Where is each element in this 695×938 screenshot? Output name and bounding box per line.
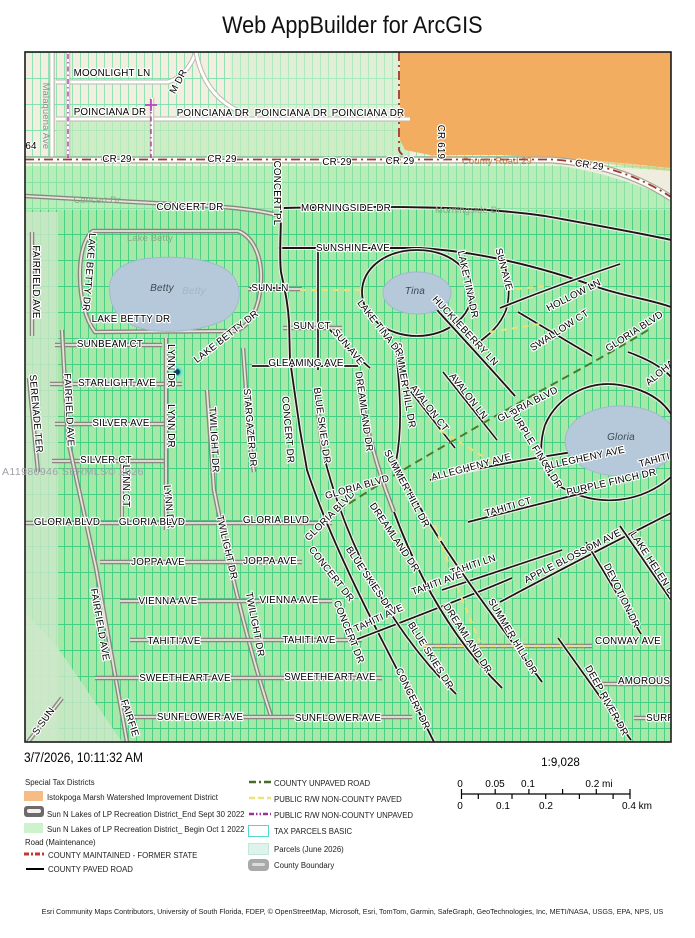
svg-text:CR 29: CR 29 [386,156,415,167]
svg-text:0.1: 0.1 [496,801,510,812]
svg-text:TAHITI AVE: TAHITI AVE [147,636,201,647]
svg-text:VIENNA AVE: VIENNA AVE [139,596,198,607]
svg-text:GLEAMING AVE: GLEAMING AVE [268,358,343,369]
svg-text:SUN LN: SUN LN [251,283,288,294]
svg-text:SUN CT: SUN CT [293,321,331,332]
svg-text:SILVER AVE: SILVER AVE [92,418,149,429]
svg-text:0.2 mi: 0.2 mi [585,779,612,790]
svg-text:CR-29: CR-29 [207,154,236,165]
svg-text:0.1: 0.1 [521,779,535,790]
svg-text:CONCERT DR: CONCERT DR [157,202,224,213]
svg-text:CONWAY AVE: CONWAY AVE [595,636,661,647]
svg-text:0: 0 [457,779,463,790]
svg-text:0.2: 0.2 [539,801,553,812]
svg-text:TAHITI AVE: TAHITI AVE [282,635,336,646]
svg-text:POINCIANA DR: POINCIANA DR [74,107,147,118]
svg-text:MORNINGSIDE DR: MORNINGSIDE DR [301,203,391,214]
svg-text:FAIRFIELD AVE: FAIRFIELD AVE [30,245,41,318]
svg-text:GLORIA BLVD: GLORIA BLVD [34,517,100,528]
svg-text:Betty: Betty [182,286,207,297]
svg-text:JOPPA AVE: JOPPA AVE [131,557,185,568]
svg-text:POINCIANA DR: POINCIANA DR [177,108,250,119]
svg-text:POINCIANA DR: POINCIANA DR [255,108,328,119]
svg-text:GLORIA BLVD: GLORIA BLVD [119,517,185,528]
svg-text:LAKE BETTY DR: LAKE BETTY DR [92,314,171,325]
svg-text:CONCERT PL: CONCERT PL [271,161,282,226]
svg-text:Tina: Tina [405,286,425,297]
svg-text:VIENNA AVE: VIENNA AVE [260,595,319,606]
svg-text:JOPPA AVE: JOPPA AVE [243,556,297,567]
svg-text:Gloria: Gloria [607,432,635,443]
svg-text:Morningside Dr: Morningside Dr [435,205,501,215]
svg-text:POINCIANA DR: POINCIANA DR [332,108,405,119]
svg-text:SWEETHEART AVE: SWEETHEART AVE [284,672,376,683]
svg-text:Betty: Betty [150,283,175,294]
svg-text:Lake Betty: Lake Betty [127,233,173,243]
svg-text:SUNFLOWER AVE: SUNFLOWER AVE [295,713,382,724]
svg-text:LYNN DR: LYNN DR [165,404,176,448]
svg-text:SURREY AVE: SURREY AVE [646,713,672,724]
svg-text:LYNN DR: LYNN DR [165,344,176,388]
svg-text:CR-29: CR-29 [102,154,131,165]
svg-text:GLORIA BLVD: GLORIA BLVD [243,515,309,526]
svg-text:64: 64 [25,141,37,152]
svg-text:MOONLIGHT LN: MOONLIGHT LN [74,68,151,79]
svg-text:SWEETHEART AVE: SWEETHEART AVE [139,673,231,684]
svg-text:CR-29: CR-29 [322,157,351,168]
svg-text:CR 619: CR 619 [435,125,446,159]
svg-text:Malaquena Ave: Malaquena Ave [41,83,51,150]
svg-text:0.05: 0.05 [485,779,505,790]
svg-text:0.4 km: 0.4 km [622,801,652,812]
svg-text:SUNSHINE AVE: SUNSHINE AVE [316,243,390,254]
svg-text:Concert Dr: Concert Dr [74,195,121,205]
svg-text:STARLIGHT AVE: STARLIGHT AVE [78,378,156,389]
svg-text:AMOROUS AVE: AMOROUS AVE [618,676,672,687]
svg-text:0: 0 [457,801,463,812]
svg-text:SUNBEAM CT: SUNBEAM CT [77,339,143,350]
svg-text:County Road 29: County Road 29 [462,156,532,166]
svg-text:SUNFLOWER AVE: SUNFLOWER AVE [157,712,244,723]
